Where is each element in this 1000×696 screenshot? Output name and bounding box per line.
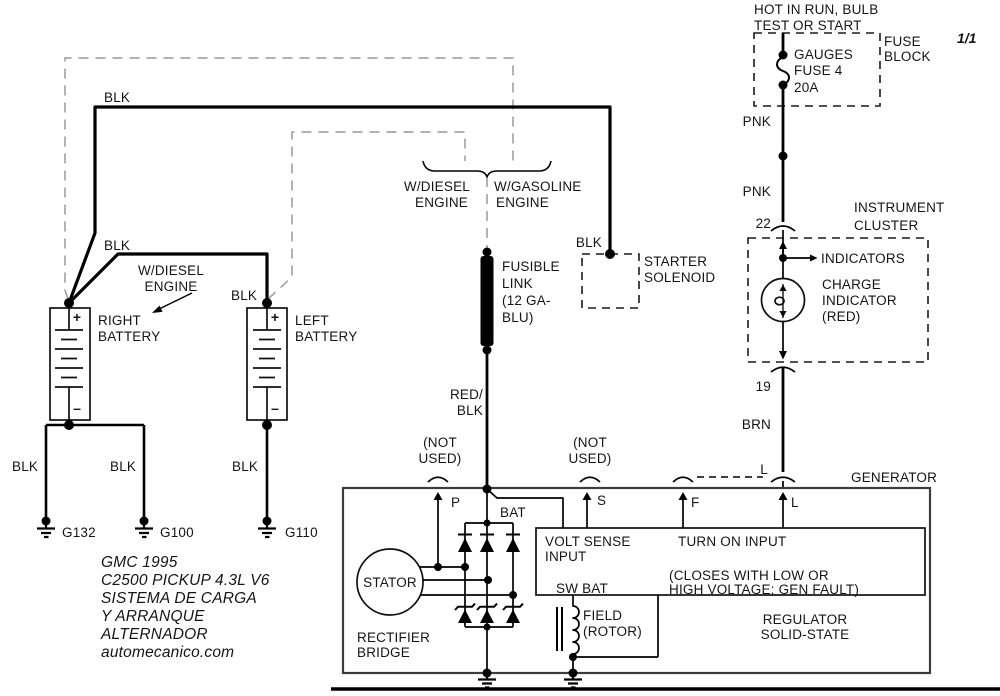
footer-line6: automecanico.com [101, 644, 234, 661]
terminal-label-l: L [791, 495, 799, 510]
ground-label-g110: G110 [285, 525, 318, 540]
left-battery-pos-terminal [262, 298, 272, 308]
stator-label: STATOR [363, 575, 417, 590]
footer-line2: C2500 PICKUP 4.3L V6 [101, 572, 270, 589]
left-battery-symbol: + – [247, 308, 287, 420]
fusible-link-symbol [481, 248, 494, 489]
footer-line5: ALTERNADOR [100, 626, 208, 643]
fusible-link-line3: (12 GA- [502, 293, 551, 308]
left-battery-minus-sign: – [271, 400, 279, 416]
diesel-note-line1: W/DIESEL [138, 263, 204, 278]
generator-title: GENERATOR [851, 470, 937, 485]
right-battery-neg-terminal [64, 420, 74, 430]
connector-p-icon [428, 477, 448, 482]
left-battery-label-line1: LEFT [295, 313, 329, 328]
hot-in-run-line1: HOT IN RUN, BULB [754, 2, 878, 17]
ground-label-g132: G132 [62, 525, 96, 540]
fusible-link-line4: BLU) [502, 310, 534, 325]
indicators-label: INDICATORS [821, 251, 905, 266]
fuse-block-label-line1: FUSE [884, 34, 921, 49]
connector-f-icon [673, 477, 693, 482]
starter-solenoid-box [582, 249, 639, 308]
rectifier-label-line1: RECTIFIER [357, 630, 430, 645]
wire-label-redblk-line1: RED/ [450, 387, 483, 402]
right-battery-minus-sign: – [73, 400, 81, 416]
closes-line2: HIGH VOLTAGE; GEN FAULT) [669, 582, 859, 597]
right-battery-symbol: + – [50, 308, 90, 420]
connector-l-icon [771, 477, 795, 488]
right-battery-body [50, 308, 90, 420]
right-battery-label-line1: RIGHT [98, 313, 141, 328]
right-battery-pos-terminal [64, 298, 74, 308]
regulator-label-line2: SOLID-STATE [761, 627, 850, 642]
down-arrow-icon [779, 351, 787, 360]
not-used-s-line1: (NOT [573, 435, 607, 450]
volt-sense-line2: INPUT [545, 549, 587, 564]
footer-line4: Y ARRANQUE [101, 608, 205, 625]
pin-19: 19 [756, 379, 771, 394]
wiring-diagram: + – + – [0, 0, 1000, 696]
ground-symbol-field [564, 669, 582, 688]
closes-line1: (CLOSES WITH LOW OR [669, 568, 829, 583]
starter-solenoid-line1: STARTER [644, 254, 707, 269]
ground-label-g100: G100 [160, 525, 194, 540]
wire-label-redblk-line2: BLK [457, 403, 483, 418]
labels: HOT IN RUN, BULB TEST OR START FUSE BLOC… [12, 2, 977, 661]
wire-label-blk-solenoid: BLK [576, 235, 602, 250]
pnk-splice-dot [779, 152, 788, 161]
regulator-label-line1: REGULATOR [763, 612, 848, 627]
not-used-s-line2: USED) [568, 451, 611, 466]
wiring-diagram-page: + – + – [0, 0, 1000, 696]
ground-symbol-g132 [37, 517, 55, 538]
wire-label-brn: BRN [742, 417, 771, 432]
wire-label-blk-top: BLK [104, 90, 130, 105]
volt-sense-line1: VOLT SENSE [545, 534, 631, 549]
charge-indicator-line1: CHARGE [822, 277, 881, 292]
fuse-number: FUSE 4 [794, 63, 843, 78]
terminal-label-p: P [451, 495, 460, 510]
option-diesel-line2: ENGINE [415, 195, 468, 210]
sw-bat-label: SW BAT [556, 581, 608, 596]
ground-symbol-g110 [258, 517, 276, 538]
rectifier-label-line2: BRIDGE [357, 645, 410, 660]
option-diesel-line1: W/DIESEL [404, 179, 470, 194]
wire-label-pnk-2: PNK [743, 184, 771, 199]
diesel-note-line2: ENGINE [145, 279, 198, 294]
up-arrow-icon [779, 241, 787, 249]
wire-label-blk-g132: BLK [12, 459, 38, 474]
pin-22: 22 [756, 216, 771, 231]
connector-s-icon [580, 477, 600, 482]
fusible-link-bar [481, 256, 494, 346]
diesel-note-arrow [152, 293, 192, 313]
field-label-line2: (ROTOR) [583, 624, 642, 639]
cluster-title-line2: CLUSTER [854, 218, 918, 233]
page-indicator: 1/1 [957, 30, 977, 46]
left-battery-neg-terminal [262, 420, 272, 430]
left-battery-plus-sign: + [271, 309, 279, 325]
charge-indicator-line2: INDICATOR [822, 293, 897, 308]
wire-label-blk-g110: BLK [232, 459, 258, 474]
diesel-option-wire [268, 132, 465, 299]
option-gasoline-line2: ENGINE [496, 195, 549, 210]
not-used-p-line1: (NOT [423, 435, 457, 450]
fusible-link-line1: FUSIBLE [502, 259, 560, 274]
right-arrow-icon [810, 255, 818, 262]
ground-symbol-rectifier [478, 669, 496, 688]
connector-22-icon [771, 226, 795, 238]
charge-indicator-bulb-icon [762, 258, 805, 360]
charge-indicator-line3: (RED) [822, 309, 861, 324]
right-battery-label-line2: BATTERY [98, 329, 160, 344]
hot-in-run-line2: TEST OR START [754, 18, 862, 33]
wire-label-l: L [760, 462, 768, 477]
footer-line1: GMC 1995 [101, 554, 178, 571]
turn-on-input-label: TURN ON INPUT [678, 534, 786, 549]
fuse-rating: 20A [794, 80, 819, 95]
option-gasoline-line1: W/GASOLINE [494, 179, 582, 194]
fuse-block-label-line2: BLOCK [884, 49, 931, 64]
engine-option-brace [423, 161, 551, 177]
wire-label-blk-g100: BLK [110, 459, 136, 474]
terminal-label-f: F [691, 495, 699, 510]
footer-line3: SISTEMA DE CARGA [101, 590, 257, 607]
wire-label-pnk-1: PNK [743, 114, 771, 129]
starter-solenoid-line2: SOLENOID [644, 270, 715, 285]
terminal-label-s: S [597, 493, 606, 508]
left-battery-label-line2: BATTERY [295, 329, 357, 344]
cluster-title-line1: INSTRUMENT [854, 200, 945, 215]
terminal-label-bat: BAT [500, 505, 526, 520]
wire-label-blk-interconnect: BLK [104, 238, 130, 253]
fusible-link-line2: LINK [502, 276, 533, 291]
ground-symbol-g100 [135, 517, 153, 538]
wire-label-blk-left-battery: BLK [231, 288, 257, 303]
fuse-name: GAUGES [794, 47, 853, 62]
field-label-line1: FIELD [583, 608, 622, 623]
right-battery-plus-sign: + [73, 309, 81, 325]
not-used-p-line2: USED) [418, 451, 461, 466]
